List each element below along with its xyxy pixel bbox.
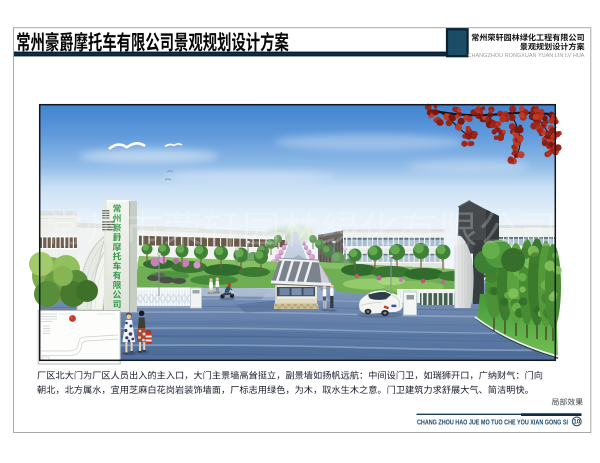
svg-text:CHANG ZHOU HAO JUE MO TUO CHE: CHANG ZHOU HAO JUE MO TUO CHE YOU XIAN G… [417, 418, 568, 427]
svg-text:CHANGZHOU RONGXUAN YUAN LIN LV: CHANGZHOU RONGXUAN YUAN LIN LV HUA [468, 53, 585, 59]
svg-text:10: 10 [573, 419, 581, 426]
